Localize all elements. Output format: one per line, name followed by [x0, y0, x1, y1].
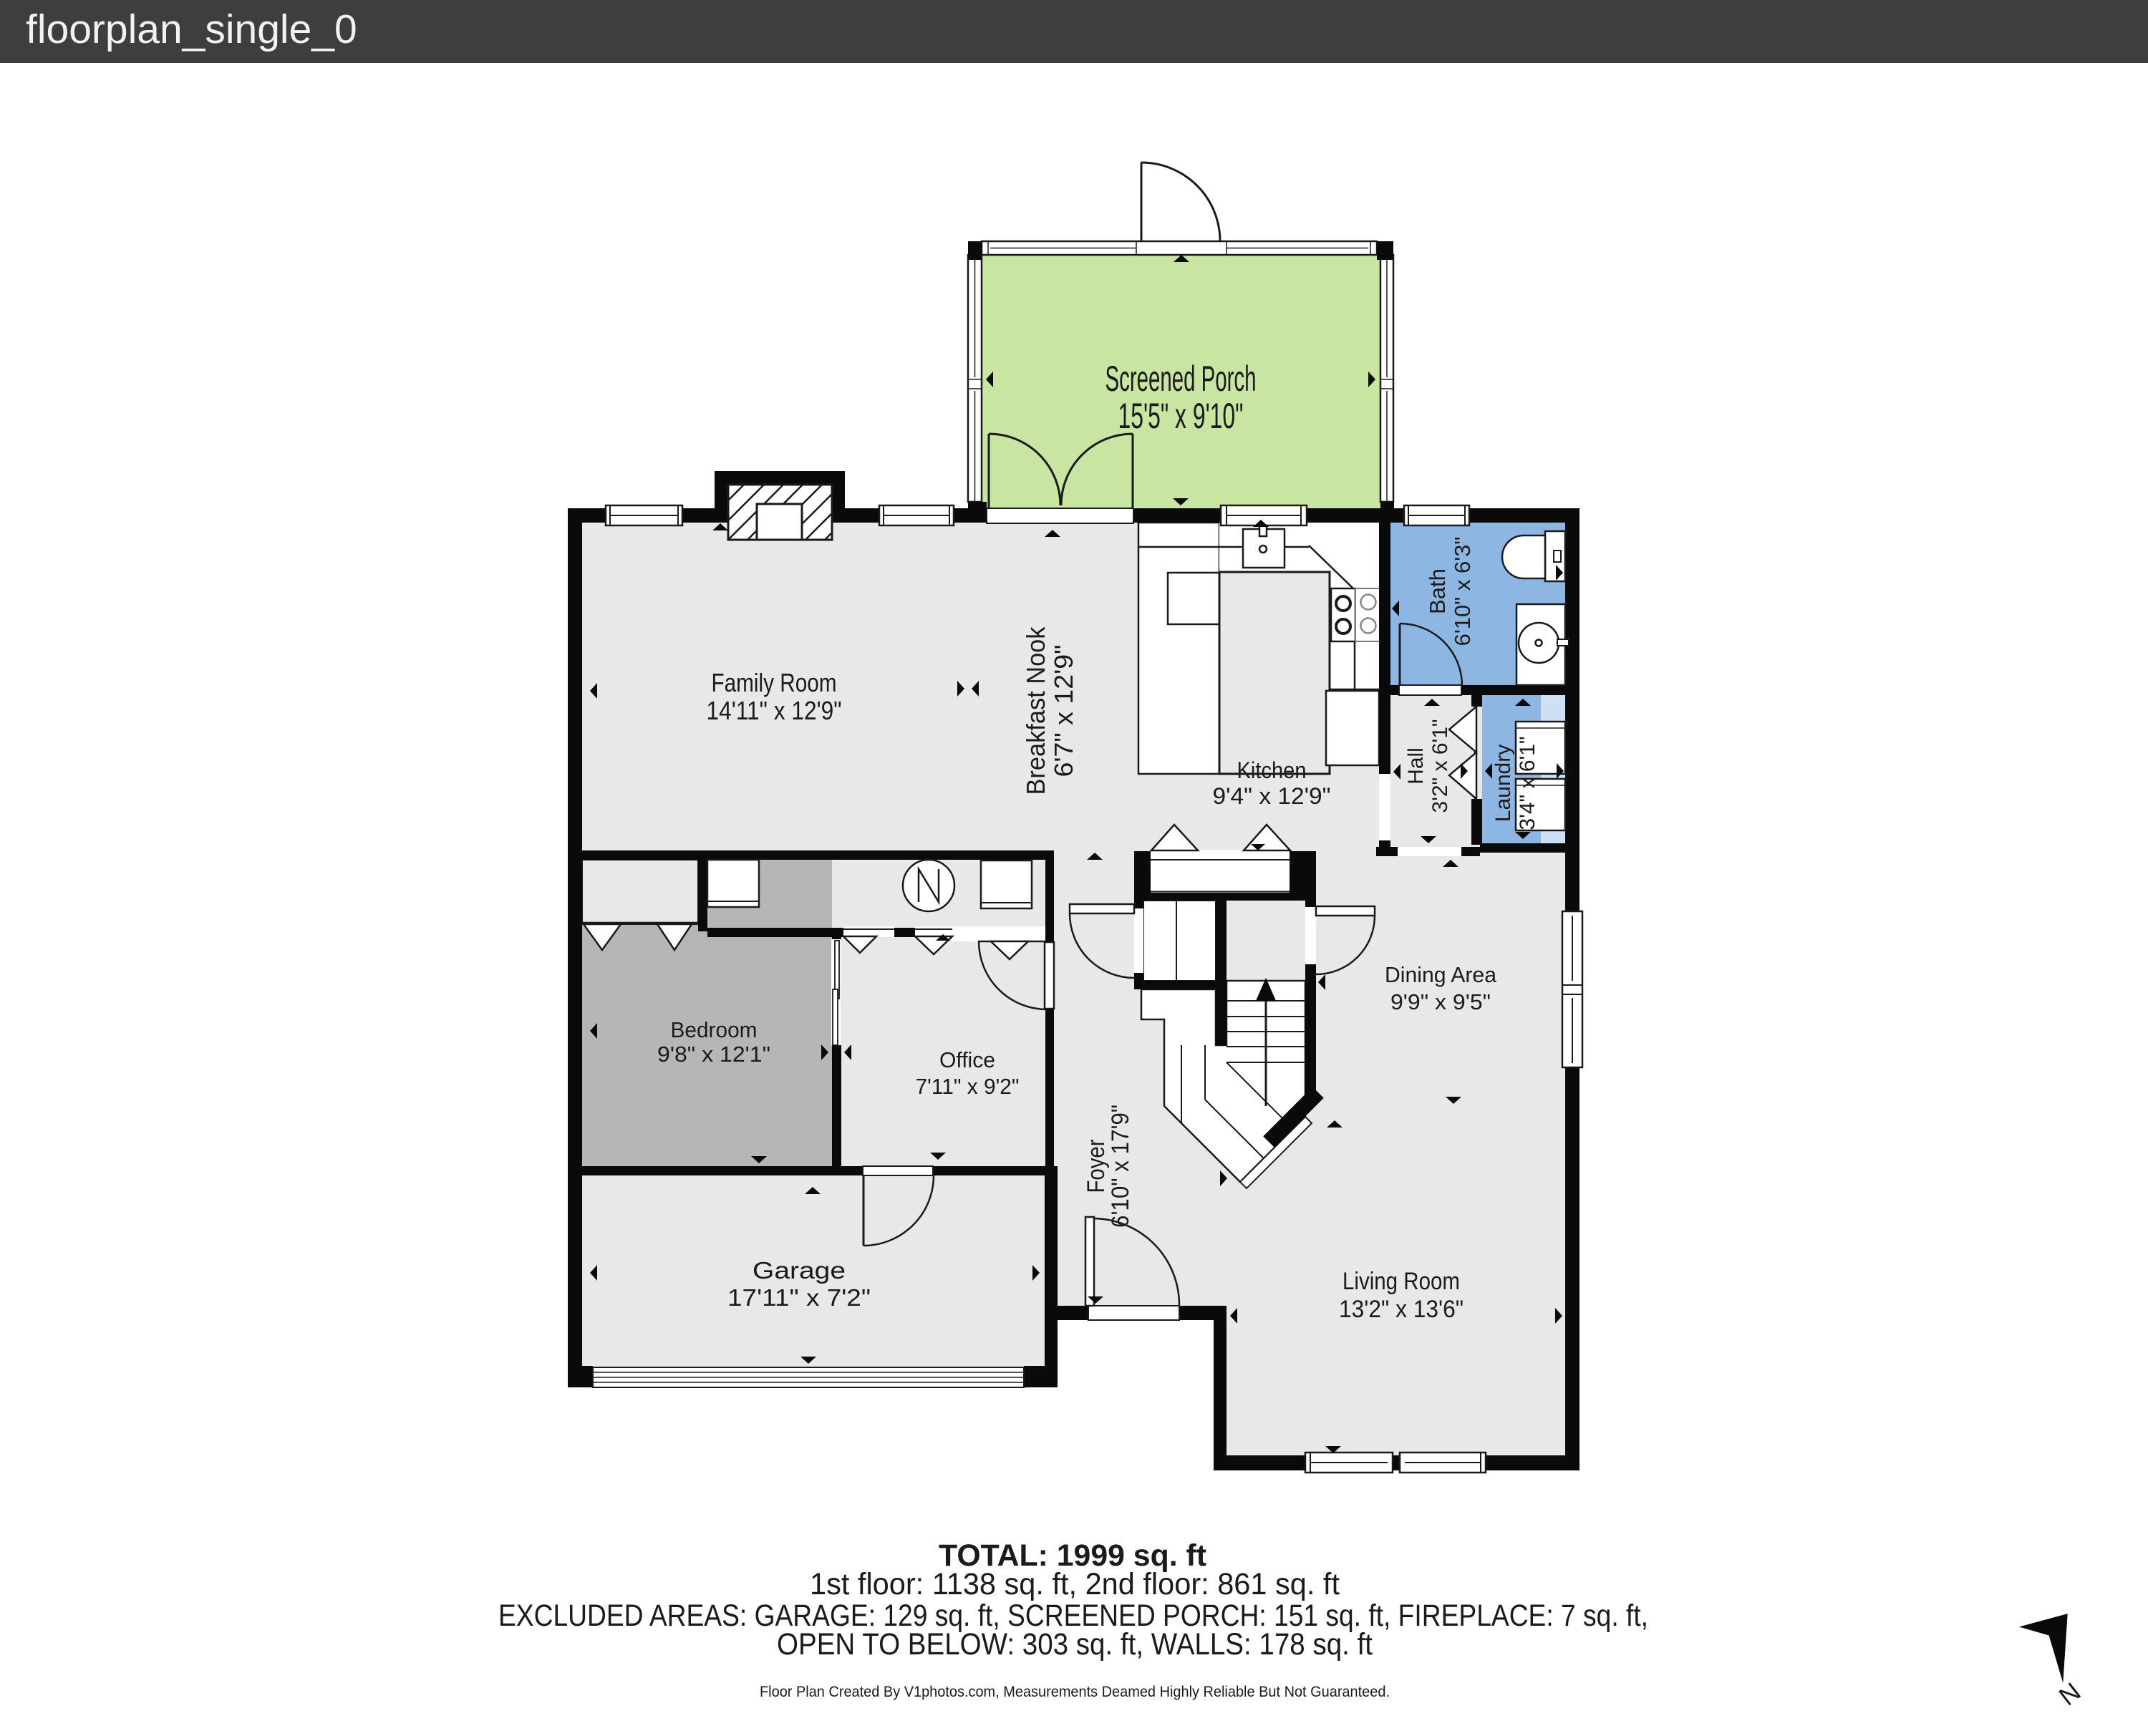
- svg-text:Living Room13'2" x 13'6": Living Room13'2" x 13'6": [1339, 1268, 1464, 1323]
- svg-text:Breakfast Nook6'7" x 12'9": Breakfast Nook6'7" x 12'9": [1021, 626, 1078, 795]
- svg-text:Bedroom9'8" x 12'1": Bedroom9'8" x 12'1": [657, 1017, 770, 1067]
- svg-text:Laundry3'4" x 6'1": Laundry3'4" x 6'1": [1491, 736, 1539, 830]
- svg-text:1st floor: 1138 sq. ft, 2nd fl: 1st floor: 1138 sq. ft, 2nd floor: 861 s…: [810, 1567, 1340, 1601]
- svg-text:Family Room14'11" x 12'9": Family Room14'11" x 12'9": [707, 668, 842, 725]
- svg-text:OPEN TO BELOW: 303 sq. ft, WAL: OPEN TO BELOW: 303 sq. ft, WALLS: 178 sq…: [777, 1627, 1373, 1662]
- svg-text:floorplan_single_0: floorplan_single_0: [26, 6, 357, 52]
- svg-text:Floor Plan Created By V1photos: Floor Plan Created By V1photos.com, Meas…: [760, 1684, 1390, 1700]
- svg-text:Screened Porch15'5" x 9'10": Screened Porch15'5" x 9'10": [1106, 359, 1257, 436]
